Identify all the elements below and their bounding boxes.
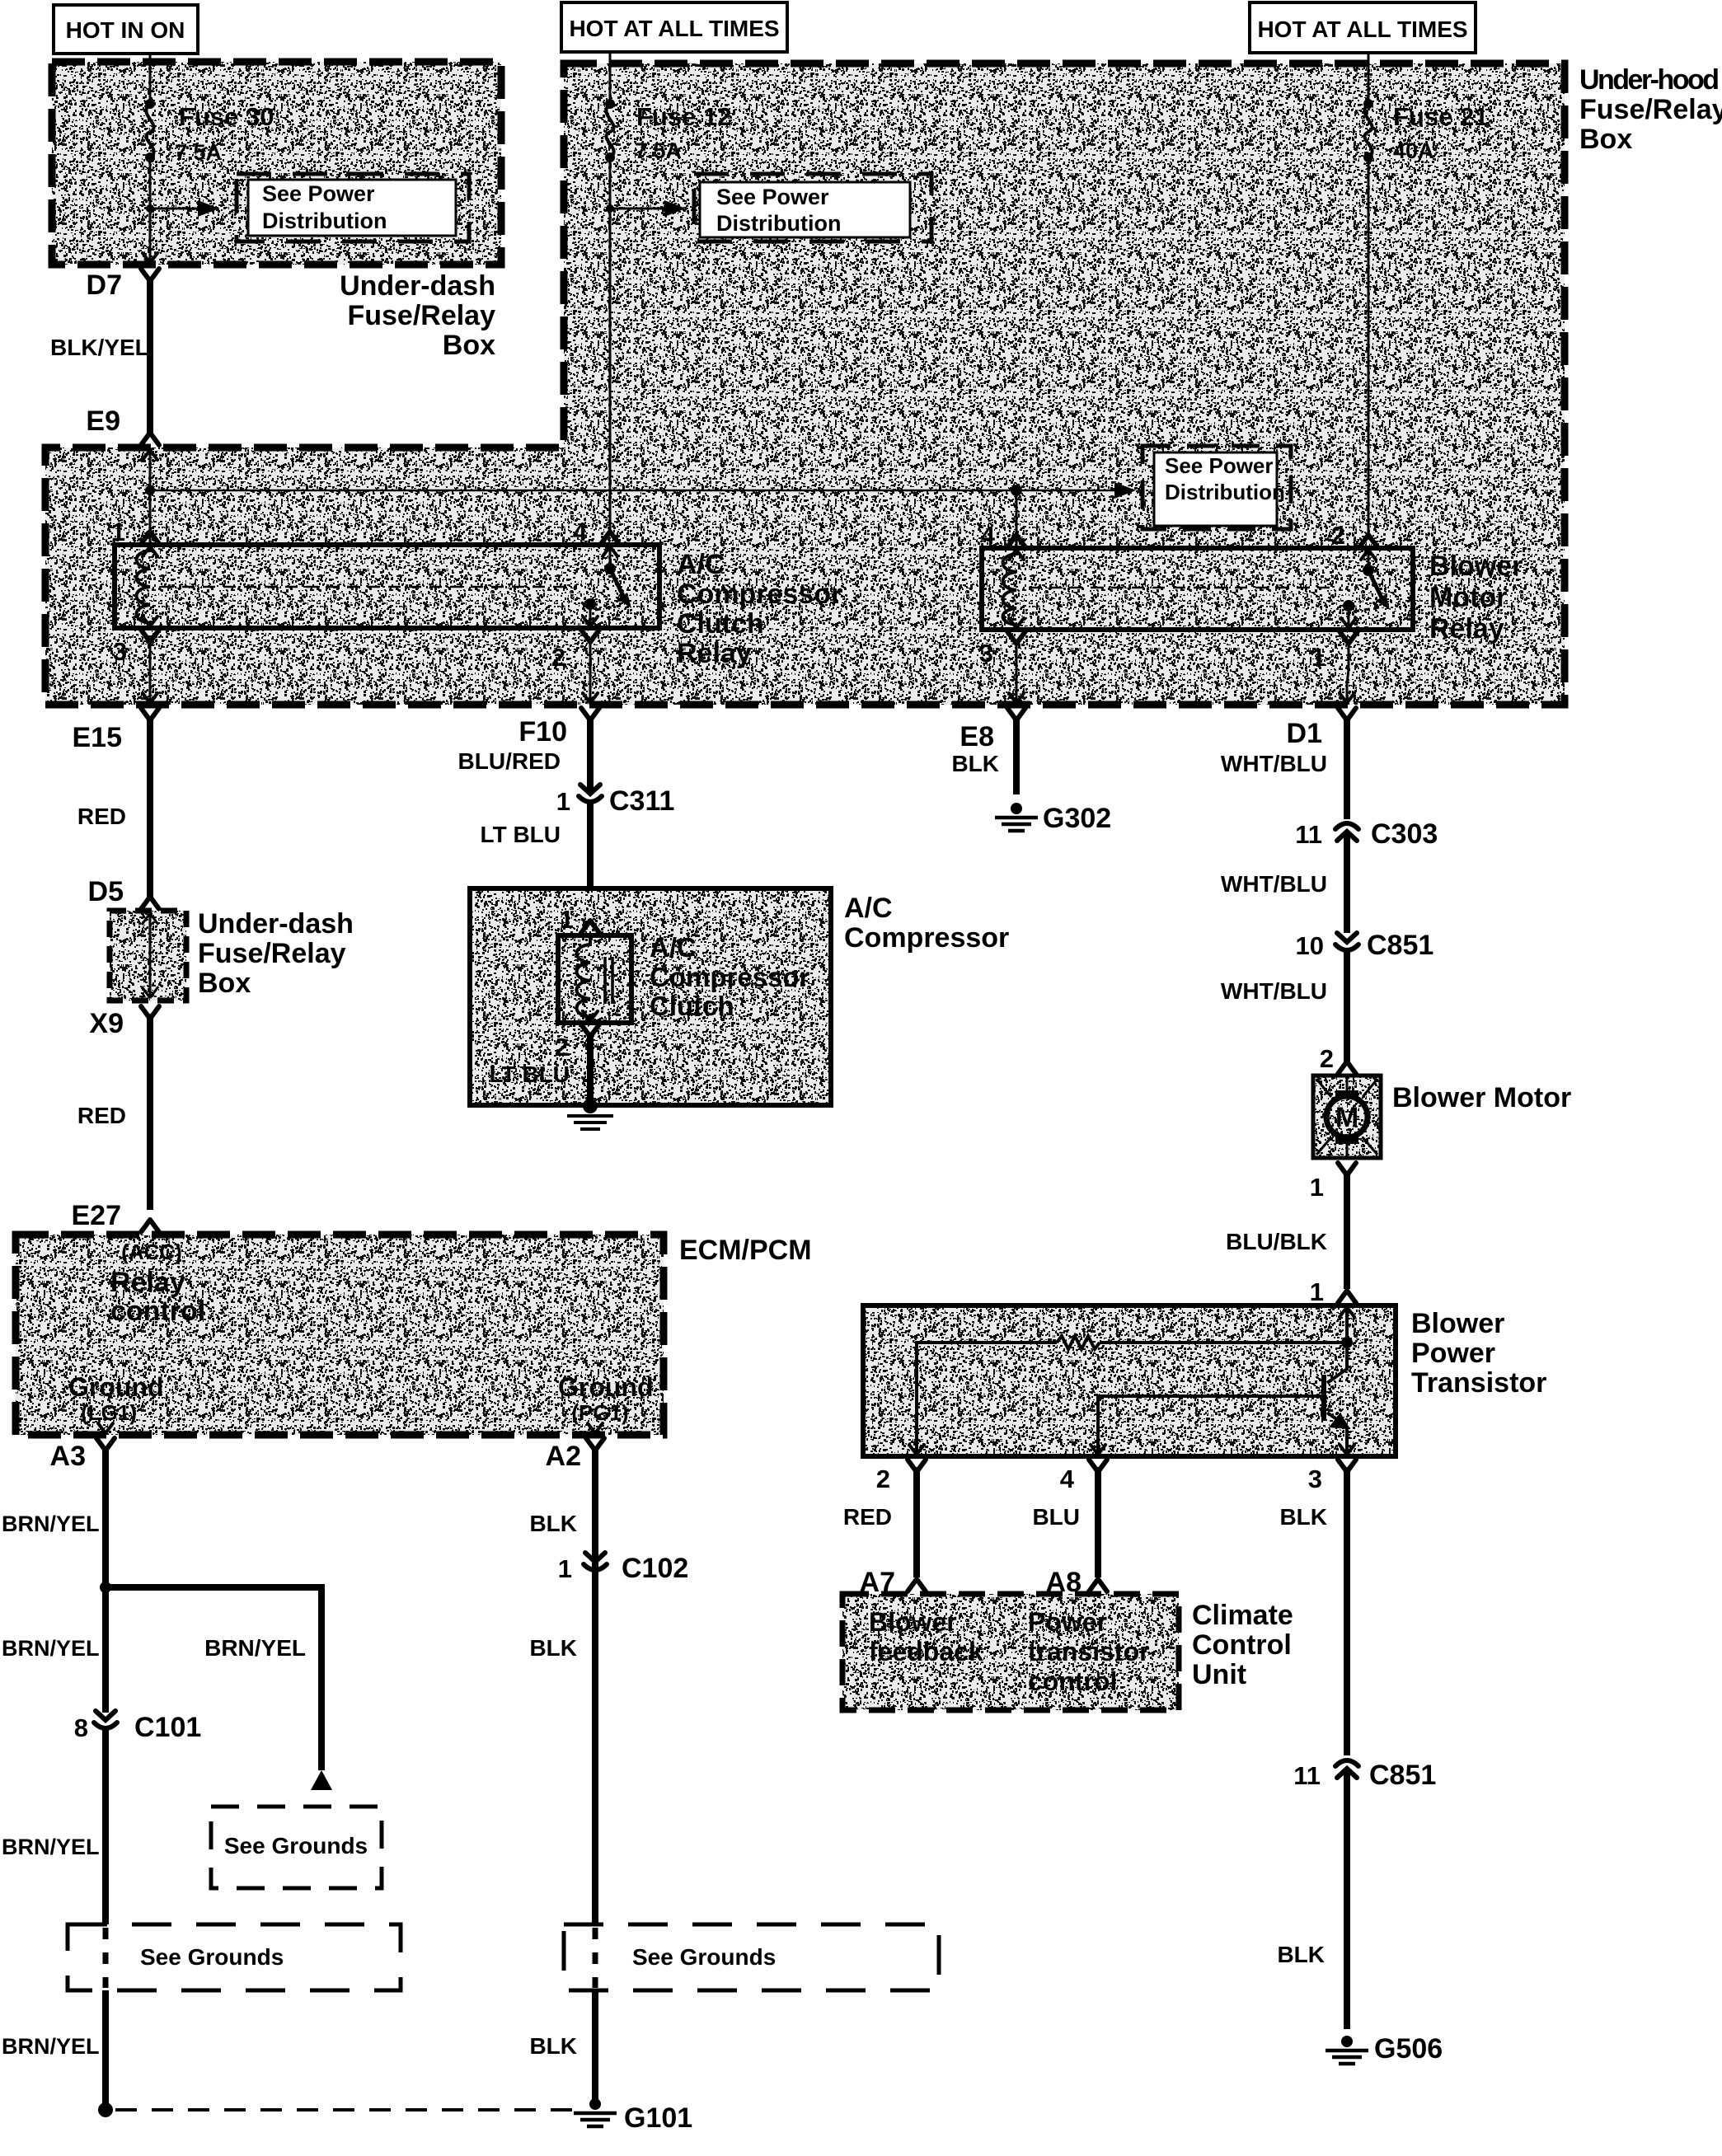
svg-text:3: 3: [979, 639, 993, 668]
svg-text:Compressor: Compressor: [677, 579, 842, 610]
svg-text:G101: G101: [624, 2102, 692, 2134]
svg-text:RED: RED: [843, 1504, 892, 1530]
svg-text:1: 1: [1311, 643, 1326, 672]
svg-text:Under-hood: Under-hood: [1579, 64, 1720, 96]
svg-text:BRN/YEL: BRN/YEL: [2, 1835, 100, 1859]
svg-text:See Power: See Power: [1165, 453, 1274, 478]
svg-text:Fuse/Relay: Fuse/Relay: [198, 938, 346, 969]
svg-text:4: 4: [981, 521, 996, 550]
svg-text:8: 8: [74, 1713, 88, 1742]
svg-text:transistor: transistor: [1028, 1637, 1150, 1666]
svg-text:Distribution: Distribution: [262, 209, 387, 233]
svg-text:LT BLU: LT BLU: [481, 822, 561, 847]
svg-text:G302: G302: [1043, 803, 1111, 834]
svg-text:Box: Box: [443, 330, 495, 361]
svg-text:C102: C102: [622, 1553, 688, 1584]
svg-text:C851: C851: [1367, 930, 1433, 961]
svg-text:3: 3: [113, 637, 127, 666]
svg-text:C311: C311: [609, 785, 674, 817]
svg-text:2: 2: [551, 643, 565, 672]
svg-text:control: control: [110, 1296, 205, 1327]
svg-text:Clutch: Clutch: [650, 991, 734, 1021]
svg-text:BLK: BLK: [951, 751, 999, 776]
svg-text:C851: C851: [1369, 1760, 1436, 1791]
svg-text:See Power: See Power: [262, 181, 375, 206]
svg-text:Transistor: Transistor: [1411, 1367, 1546, 1399]
svg-text:2: 2: [876, 1465, 890, 1493]
svg-text:BLU/RED: BLU/RED: [458, 748, 561, 774]
svg-text:D7: D7: [87, 269, 122, 301]
svg-text:BRN/YEL: BRN/YEL: [2, 1512, 100, 1536]
svg-text:1: 1: [1310, 1173, 1324, 1202]
svg-text:Under-dash: Under-dash: [198, 908, 354, 940]
svg-text:2: 2: [1320, 1044, 1334, 1073]
svg-text:Clutch: Clutch: [677, 608, 764, 640]
svg-text:BRN/YEL: BRN/YEL: [2, 1636, 100, 1661]
svg-text:Relay: Relay: [110, 1267, 185, 1298]
svg-text:4: 4: [573, 518, 588, 546]
svg-text:Compressor: Compressor: [844, 922, 1009, 954]
svg-text:Fuse 30: Fuse 30: [179, 102, 274, 131]
svg-text:Climate: Climate: [1192, 1600, 1293, 1631]
svg-text:Ground: Ground: [558, 1372, 654, 1402]
svg-text:RED: RED: [77, 1103, 126, 1128]
svg-text:LT BLU: LT BLU: [490, 1062, 570, 1087]
svg-text:(ACC): (ACC): [121, 1240, 182, 1264]
svg-text:D5: D5: [88, 876, 124, 907]
svg-text:X9: X9: [89, 1008, 124, 1039]
svg-text:10: 10: [1296, 931, 1324, 960]
svg-text:Fuse/Relay: Fuse/Relay: [1579, 94, 1722, 125]
svg-text:7.5A: 7.5A: [635, 138, 682, 163]
svg-text:11: 11: [1293, 1761, 1321, 1790]
svg-text:WHT/BLU: WHT/BLU: [1221, 871, 1327, 897]
svg-text:Fuse 21: Fuse 21: [1393, 102, 1488, 131]
svg-text:Box: Box: [1579, 124, 1632, 155]
svg-text:HOT IN ON: HOT IN ON: [66, 17, 185, 43]
svg-text:7.5A: 7.5A: [175, 140, 222, 165]
svg-text:See Grounds: See Grounds: [140, 1944, 284, 1970]
svg-text:2: 2: [555, 1033, 569, 1062]
svg-text:Compressor: Compressor: [650, 962, 810, 992]
svg-text:Box: Box: [198, 968, 251, 999]
svg-text:BRN/YEL: BRN/YEL: [2, 2034, 100, 2059]
svg-text:HOT AT ALL TIMES: HOT AT ALL TIMES: [1257, 16, 1467, 42]
svg-text:Unit: Unit: [1192, 1659, 1246, 1690]
svg-text:E15: E15: [73, 722, 123, 753]
svg-text:1: 1: [558, 1554, 572, 1583]
svg-text:Ground: Ground: [68, 1372, 164, 1402]
svg-text:E27: E27: [72, 1200, 122, 1231]
svg-text:40A: 40A: [1393, 138, 1434, 163]
svg-text:C101: C101: [134, 1712, 201, 1743]
svg-text:BRN/YEL: BRN/YEL: [204, 1635, 306, 1661]
svg-text:BLK: BLK: [529, 1635, 577, 1661]
svg-text:M: M: [1335, 1102, 1358, 1133]
svg-text:Blower Motor: Blower Motor: [1392, 1082, 1571, 1113]
svg-text:Blower: Blower: [869, 1607, 957, 1637]
svg-text:BLU: BLU: [1032, 1504, 1080, 1530]
svg-text:Distribution: Distribution: [1165, 480, 1285, 504]
svg-text:BLK/YEL: BLK/YEL: [50, 335, 149, 360]
svg-text:Distribution: Distribution: [716, 211, 841, 236]
svg-text:See Grounds: See Grounds: [224, 1833, 368, 1858]
svg-text:E9: E9: [86, 405, 120, 437]
svg-text:4: 4: [1060, 1465, 1075, 1493]
svg-text:A/C: A/C: [650, 932, 697, 963]
svg-text:Fuse/Relay: Fuse/Relay: [347, 300, 495, 331]
svg-text:Blower: Blower: [1411, 1308, 1504, 1339]
svg-text:C303: C303: [1371, 818, 1438, 850]
svg-text:1: 1: [1310, 1277, 1324, 1306]
svg-text:control: control: [1028, 1666, 1117, 1696]
svg-text:RED: RED: [77, 804, 126, 829]
svg-text:1: 1: [556, 787, 570, 816]
svg-text:See Power: See Power: [716, 185, 829, 209]
svg-text:A/C: A/C: [844, 893, 893, 924]
svg-text:1: 1: [111, 518, 125, 546]
svg-text:F10: F10: [518, 716, 567, 748]
svg-text:Control: Control: [1192, 1629, 1292, 1661]
svg-text:1: 1: [560, 905, 574, 934]
svg-text:E8: E8: [960, 721, 994, 752]
svg-text:A3: A3: [50, 1441, 86, 1472]
svg-text:BLK: BLK: [529, 1511, 577, 1536]
svg-text:WHT/BLU: WHT/BLU: [1221, 751, 1327, 776]
svg-text:D1: D1: [1287, 718, 1322, 749]
svg-text:Blower: Blower: [1429, 551, 1523, 582]
svg-text:Relay: Relay: [677, 638, 752, 669]
svg-text:A2: A2: [546, 1441, 581, 1472]
svg-text:3: 3: [1308, 1465, 1322, 1493]
svg-text:BLK: BLK: [1277, 1942, 1325, 1967]
svg-text:Under-dash: Under-dash: [340, 270, 495, 302]
svg-text:Power: Power: [1411, 1338, 1495, 1369]
svg-text:Power: Power: [1028, 1607, 1107, 1637]
svg-text:G506: G506: [1374, 2033, 1443, 2065]
svg-text:WHT/BLU: WHT/BLU: [1221, 978, 1327, 1004]
svg-text:BLK: BLK: [1279, 1504, 1327, 1530]
svg-text:HOT AT ALL TIMES: HOT AT ALL TIMES: [569, 16, 779, 41]
svg-text:Fuse 12: Fuse 12: [636, 102, 731, 131]
svg-text:2: 2: [1331, 521, 1345, 550]
svg-text:BLU/BLK: BLU/BLK: [1226, 1229, 1327, 1254]
svg-text:11: 11: [1295, 820, 1322, 849]
svg-text:feedback: feedback: [869, 1637, 983, 1666]
svg-text:See Grounds: See Grounds: [632, 1944, 776, 1970]
svg-text:(LG1): (LG1): [81, 1400, 137, 1425]
svg-text:(PG1): (PG1): [571, 1400, 628, 1425]
svg-text:A/C: A/C: [677, 549, 725, 580]
svg-text:BLK: BLK: [529, 2033, 577, 2059]
svg-text:Motor: Motor: [1429, 582, 1507, 613]
svg-text:ECM/PCM: ECM/PCM: [679, 1235, 812, 1266]
svg-text:Relay: Relay: [1429, 613, 1504, 644]
